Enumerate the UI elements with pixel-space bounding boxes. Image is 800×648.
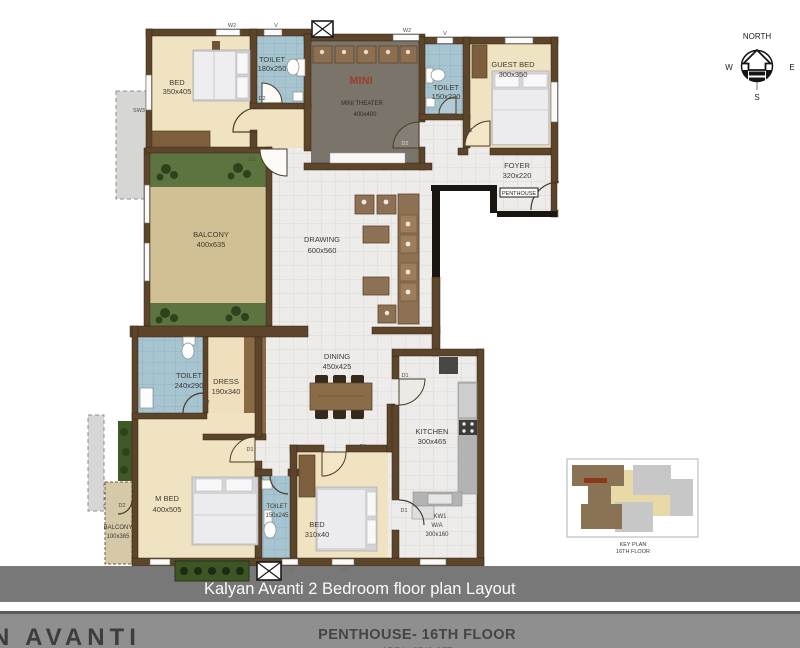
svg-text:180x250: 180x250 bbox=[258, 64, 287, 73]
svg-text:400x505: 400x505 bbox=[153, 505, 182, 514]
svg-text:DINING: DINING bbox=[324, 352, 350, 361]
svg-text:DRAWING: DRAWING bbox=[304, 235, 340, 244]
svg-text:DRESS: DRESS bbox=[213, 377, 239, 386]
svg-text:KEY PLAN: KEY PLAN bbox=[620, 542, 647, 548]
svg-text:FOYER: FOYER bbox=[504, 161, 530, 170]
svg-text:400x635: 400x635 bbox=[197, 240, 226, 249]
svg-text:W: W bbox=[725, 63, 733, 72]
svg-text:KITCHEN: KITCHEN bbox=[416, 427, 449, 436]
svg-text:S: S bbox=[754, 93, 759, 102]
svg-text:320x220: 320x220 bbox=[503, 171, 532, 180]
svg-text:D2: D2 bbox=[118, 503, 125, 509]
svg-text:300x350: 300x350 bbox=[499, 70, 528, 79]
svg-text:W2: W2 bbox=[228, 23, 236, 29]
svg-text:310x40: 310x40 bbox=[305, 530, 330, 539]
svg-text:D2: D2 bbox=[258, 96, 265, 102]
svg-text:E: E bbox=[789, 63, 794, 72]
svg-text:V: V bbox=[443, 31, 447, 37]
svg-text:TOILET: TOILET bbox=[267, 504, 288, 510]
svg-text:150x245: 150x245 bbox=[265, 513, 289, 519]
svg-text:D1: D1 bbox=[400, 508, 407, 514]
svg-text:100x365: 100x365 bbox=[106, 534, 130, 540]
svg-text:TOILET: TOILET bbox=[176, 371, 203, 380]
svg-text:W/A: W/A bbox=[431, 523, 442, 529]
svg-text:190x340: 190x340 bbox=[212, 387, 241, 396]
svg-text:MINI THEATER: MINI THEATER bbox=[341, 101, 383, 107]
svg-text:350x405: 350x405 bbox=[163, 87, 192, 96]
svg-text:NORTH: NORTH bbox=[743, 32, 772, 41]
svg-text:TOILET: TOILET bbox=[259, 55, 286, 64]
svg-text:BED: BED bbox=[309, 520, 325, 529]
svg-text:BED: BED bbox=[169, 78, 185, 87]
svg-text:TOILET: TOILET bbox=[433, 83, 460, 92]
svg-text:V: V bbox=[274, 23, 278, 29]
svg-text:MINI: MINI bbox=[349, 75, 372, 87]
svg-text:PENTHOUSE: PENTHOUSE bbox=[502, 191, 537, 197]
svg-text:W2: W2 bbox=[403, 28, 411, 34]
svg-text:D1: D1 bbox=[401, 373, 408, 379]
svg-text:D2: D2 bbox=[401, 141, 408, 147]
svg-text:GUEST BED: GUEST BED bbox=[491, 60, 535, 69]
svg-text:BALCONY: BALCONY bbox=[104, 525, 133, 531]
svg-text:N AVANTI: N AVANTI bbox=[0, 624, 141, 648]
svg-text:240x290: 240x290 bbox=[175, 381, 204, 390]
svg-text:BALCONY: BALCONY bbox=[193, 230, 229, 239]
svg-text:D1: D1 bbox=[248, 157, 255, 163]
svg-text:600x560: 600x560 bbox=[308, 246, 337, 255]
svg-text:D1: D1 bbox=[465, 128, 472, 134]
svg-text:D1: D1 bbox=[359, 444, 366, 450]
svg-text:450x425: 450x425 bbox=[323, 362, 352, 371]
svg-text:300x465: 300x465 bbox=[418, 437, 447, 446]
svg-text:M BED: M BED bbox=[155, 494, 179, 503]
svg-text:SW3: SW3 bbox=[133, 108, 145, 114]
svg-text:300x160: 300x160 bbox=[425, 532, 449, 538]
svg-text:KW1: KW1 bbox=[433, 514, 447, 520]
svg-text:D2: D2 bbox=[202, 400, 209, 406]
svg-text:150x220: 150x220 bbox=[432, 92, 461, 101]
svg-text:D1: D1 bbox=[246, 447, 253, 453]
svg-text:400x400: 400x400 bbox=[353, 112, 377, 118]
svg-text:Kalyan Avanti 2 Bedroom floor: Kalyan Avanti 2 Bedroom floor plan Layou… bbox=[204, 580, 516, 598]
svg-text:PENTHOUSE- 16TH FLOOR: PENTHOUSE- 16TH FLOOR bbox=[318, 627, 516, 643]
svg-text:16TH FLOOR: 16TH FLOOR bbox=[616, 549, 650, 555]
